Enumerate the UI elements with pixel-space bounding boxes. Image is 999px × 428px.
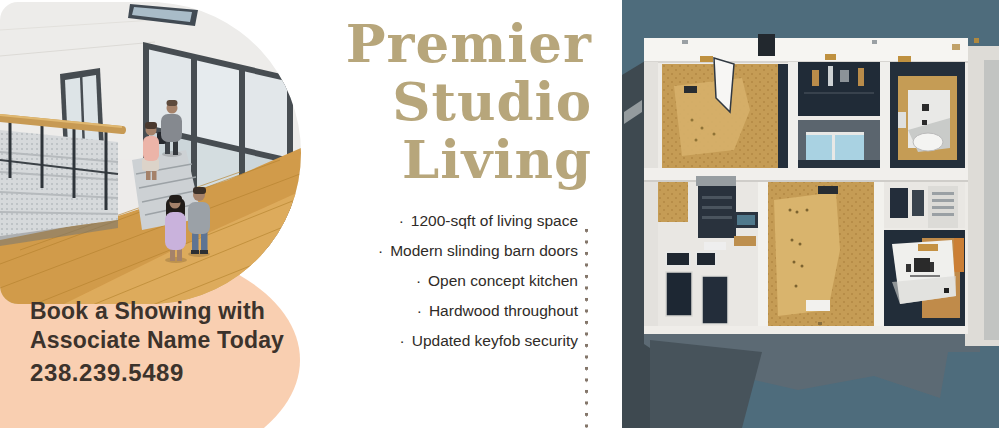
feature-item: ·Open concept kitchen xyxy=(288,266,578,296)
bullet-dot: · xyxy=(416,272,421,289)
plan-room-living xyxy=(758,182,884,332)
flyer-canvas: Book a Showing with Associate Name Today… xyxy=(0,0,999,428)
home-tour-photo-illustration xyxy=(0,2,310,306)
feature-item-label: Modern slinding barn doors xyxy=(390,242,578,259)
bullet-dot: · xyxy=(399,212,404,229)
headline-line-1: Premier xyxy=(298,14,592,72)
feature-item-label: Updated keyfob security xyxy=(412,332,578,349)
plan-room-bedroom xyxy=(662,58,790,168)
feature-item: ·Hardwood throughout xyxy=(288,296,578,326)
floorplan-panel xyxy=(622,0,999,428)
bullet-dot: · xyxy=(400,332,405,349)
bullet-dot: · xyxy=(417,302,422,319)
feature-item: ·1200-sqft of living space xyxy=(288,206,578,236)
plan-room-entry xyxy=(658,176,758,332)
plan-room-bathroom xyxy=(890,62,965,168)
phone-number: 238.239.5489 xyxy=(30,358,284,387)
feature-item: ·Modern slinding barn doors xyxy=(288,236,578,266)
booking-cta: Book a Showing with Associate Name Today… xyxy=(30,297,284,387)
staircase xyxy=(0,130,118,246)
booking-cta-line1: Book a Showing with xyxy=(30,297,284,326)
headline-line-3: Living xyxy=(298,130,592,188)
features-list: ·1200-sqft of living space ·Modern slind… xyxy=(288,206,578,356)
feature-item-label: Hardwood throughout xyxy=(429,302,578,319)
booking-cta-line2: Associate Name Today xyxy=(30,326,284,355)
headline: Premier Studio Living xyxy=(298,14,592,188)
floorplan-illustration xyxy=(622,0,999,428)
feature-item-label: 1200-sqft of living space xyxy=(411,212,578,229)
home-tour-photo xyxy=(0,2,310,306)
feature-item: ·Updated keyfob security xyxy=(288,326,578,356)
plan-room-kitchenette xyxy=(798,62,880,168)
feature-item-label: Open concept kitchen xyxy=(428,272,578,289)
dotted-divider xyxy=(584,228,589,428)
headline-line-2: Studio xyxy=(298,72,592,130)
plan-room-office xyxy=(884,182,965,326)
bullet-dot: · xyxy=(378,242,383,259)
